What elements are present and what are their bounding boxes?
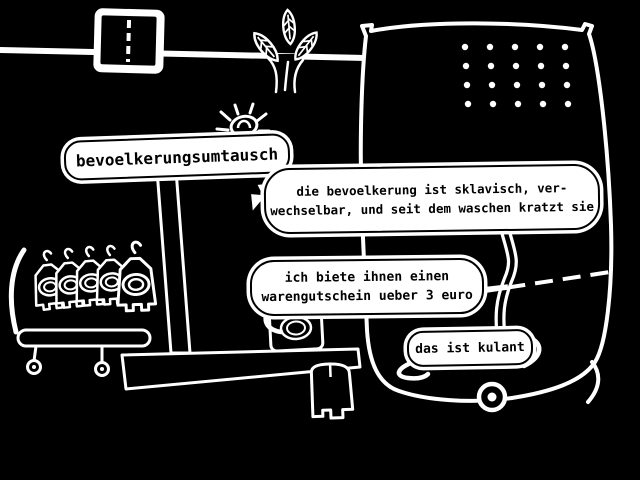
speech-line: wechselbar, und seit dem waschen kratzt …	[270, 197, 594, 221]
road-sign-icon[interactable]	[93, 8, 165, 74]
sign-pole	[157, 170, 190, 353]
game-scene: bevoelkerungsumtausch die bevoelkerung i…	[0, 0, 640, 480]
sign-text-banner[interactable]: bevoelkerungsumtausch	[63, 133, 290, 181]
garment-icon	[116, 242, 156, 312]
plant-icon[interactable]	[250, 9, 321, 94]
rack-arm-icon	[11, 250, 24, 332]
speech-line: das ist kulant	[415, 338, 525, 359]
creature-icon[interactable]	[311, 363, 353, 418]
bug-icon[interactable]	[217, 104, 269, 138]
speech-bubble-offer: ich biete ihnen einen warengutschein ueb…	[250, 258, 485, 316]
sign-text: bevoelkerungsumtausch	[76, 144, 279, 170]
speech-line: ich biete ihnen einen	[285, 267, 450, 288]
speech-line: warengutschein ueber 3 euro	[261, 286, 473, 307]
wheel-icon	[479, 384, 505, 410]
speech-bubble-kulant: das ist kulant	[407, 329, 534, 367]
speech-bubble-machine: die bevoelkerung ist sklavisch, ver- wec…	[264, 164, 601, 235]
scene-artwork	[0, 0, 640, 480]
